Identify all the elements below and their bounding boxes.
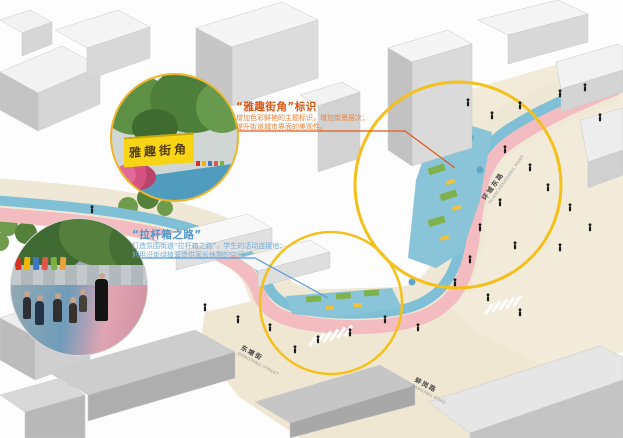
- annotation-suitcase-road: “拉杆箱之路” 打造氛围街道“拉杆箱之路”，学生的活动连接地； 利用沿街绿植营造…: [132, 227, 286, 260]
- person-figure: [514, 241, 517, 249]
- annotation-line: 提升街道城市界面的美观性。: [236, 123, 369, 132]
- annotation-line: 利用沿街绿植营造供家长休憩的空间。: [132, 251, 286, 260]
- person-figure: [519, 308, 522, 316]
- person-adult: [95, 279, 108, 321]
- person-figure: [487, 293, 490, 301]
- masterplan-figure: 雅趣街角 “雅趣街角”标识 增加色彩鲜艳的主题标识，增加街景层次；: [0, 0, 623, 438]
- flower-bed: [112, 163, 156, 191]
- corner-sign-text: 雅趣街角: [129, 139, 189, 160]
- person-student: [69, 303, 77, 323]
- annotation-street-corner: “雅趣街角”标识 增加色彩鲜艳的主题标识，增加街景层次； 提升街道城市界面的美观…: [236, 99, 369, 132]
- person-student: [79, 295, 87, 312]
- person-figure: [589, 223, 592, 231]
- person-figure: [569, 203, 572, 211]
- person-figure: [499, 198, 502, 206]
- person-figure: [559, 243, 562, 251]
- person-figure: [454, 278, 457, 286]
- person-figure: [384, 315, 387, 323]
- person-figure: [469, 255, 472, 263]
- person-figure: [584, 83, 587, 91]
- person-figure: [504, 145, 507, 153]
- person-figure: [599, 113, 602, 121]
- person-student: [35, 301, 44, 325]
- person-student: [53, 299, 62, 322]
- vertical-banners: [15, 257, 66, 270]
- annotation-line: 增加色彩鲜艳的主题标识，增加街景层次；: [236, 114, 369, 123]
- person-figure: [547, 183, 550, 191]
- person-figure: [204, 303, 207, 311]
- person-figure: [467, 98, 470, 106]
- person-figure: [317, 335, 320, 343]
- person-student: [23, 297, 31, 319]
- person-figure: [294, 345, 297, 353]
- annotation-title: “拉杆箱之路”: [132, 227, 286, 242]
- annotation-title: “雅趣街角”标识: [236, 99, 369, 114]
- corner-sign: 雅趣街角: [124, 133, 194, 168]
- person-figure: [479, 223, 482, 231]
- person-figure: [559, 89, 562, 97]
- person-figure: [349, 328, 352, 336]
- photo-inset-suitcase-road: [10, 218, 148, 356]
- person-figure: [529, 163, 532, 171]
- tree-blob: [196, 81, 239, 133]
- person-figure: [519, 101, 522, 109]
- person-figure: [91, 205, 94, 213]
- bunting-flags: [196, 161, 224, 166]
- person-figure: [237, 315, 240, 323]
- photo-inset-street-corner: 雅趣街角: [110, 73, 239, 202]
- person-figure: [417, 323, 420, 331]
- person-figure: [269, 323, 272, 331]
- person-figure: [491, 111, 494, 119]
- annotation-line: 打造氛围街道“拉杆箱之路”，学生的活动连接地；: [132, 242, 286, 251]
